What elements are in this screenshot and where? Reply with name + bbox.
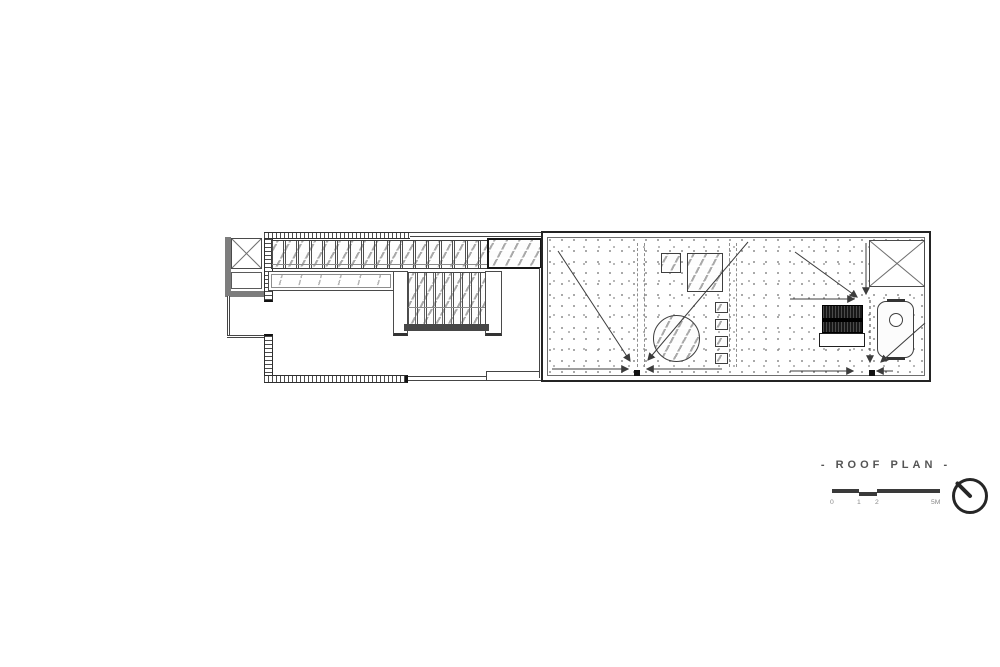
equipment-base xyxy=(819,333,865,347)
skylight-square-small xyxy=(661,253,681,273)
scale-label: 2 xyxy=(875,498,879,506)
wall-left-lower xyxy=(227,296,230,337)
glass-canopy-band xyxy=(268,271,394,291)
glass-canopy-inner xyxy=(271,274,391,288)
expansion-joint-line xyxy=(644,243,645,367)
expansion-joint-line xyxy=(729,243,730,367)
roof-shaft-box-right xyxy=(869,240,925,287)
wall-notch xyxy=(227,335,267,338)
scale-label: 1 xyxy=(857,498,861,506)
scale-label: 5M xyxy=(931,498,940,506)
wall-thin-top xyxy=(410,232,545,237)
scale-bar-segment xyxy=(877,489,940,493)
north-arrow-icon xyxy=(948,474,992,518)
wall-step-band xyxy=(486,371,542,381)
skylight-panel-middle xyxy=(408,272,485,325)
scale-label: 0 xyxy=(830,498,834,506)
roof-vent xyxy=(715,336,728,347)
skylight-transom-line xyxy=(408,307,485,308)
roof-vent xyxy=(715,353,728,364)
wall-hatched-top xyxy=(264,232,410,239)
skylight-circle xyxy=(653,315,700,362)
x-cross-icon xyxy=(870,241,924,286)
water-tank-cap xyxy=(887,299,905,302)
water-tank xyxy=(877,301,914,358)
equipment-dark-panel xyxy=(822,305,863,333)
roof-hatch-box xyxy=(231,272,262,289)
skylight-square-large xyxy=(687,253,723,292)
roof-shaft-box-left xyxy=(231,238,262,269)
skylight-band-top xyxy=(271,240,488,269)
wall-thick-bottom xyxy=(225,291,266,297)
wall-hatched-bottom xyxy=(264,375,408,383)
expansion-joint-line xyxy=(637,243,638,367)
water-tank-lid-circle xyxy=(889,313,903,327)
scale-bar-segment xyxy=(859,492,877,496)
skylight-bottom-frame xyxy=(404,324,489,331)
expansion-joint-line xyxy=(736,243,737,367)
plan-title: - ROOF PLAN - xyxy=(820,459,952,471)
scale-bar-segment xyxy=(832,489,859,493)
water-tank-cap xyxy=(887,357,905,360)
roof-vent xyxy=(715,319,728,330)
roof-plan-sheet: - ROOF PLAN - 0 1 2 5M xyxy=(0,0,1000,667)
equipment-panel-band xyxy=(823,318,862,322)
wall-thin-bottom xyxy=(408,376,488,381)
x-cross-icon xyxy=(232,239,261,268)
skylight-band-frame-line xyxy=(272,264,487,265)
glass-panel-top-right xyxy=(487,238,542,269)
roof-vent xyxy=(715,302,728,313)
